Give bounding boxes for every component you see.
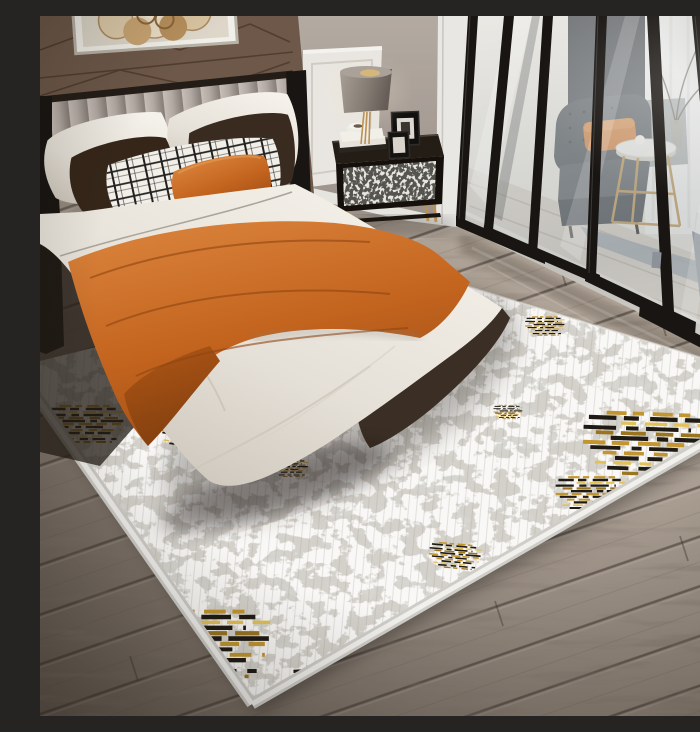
scene-canvas xyxy=(40,16,700,716)
vignette xyxy=(40,16,700,716)
bedroom-rug-photo: Distressed abstract area rug in gray, cr… xyxy=(40,16,700,716)
